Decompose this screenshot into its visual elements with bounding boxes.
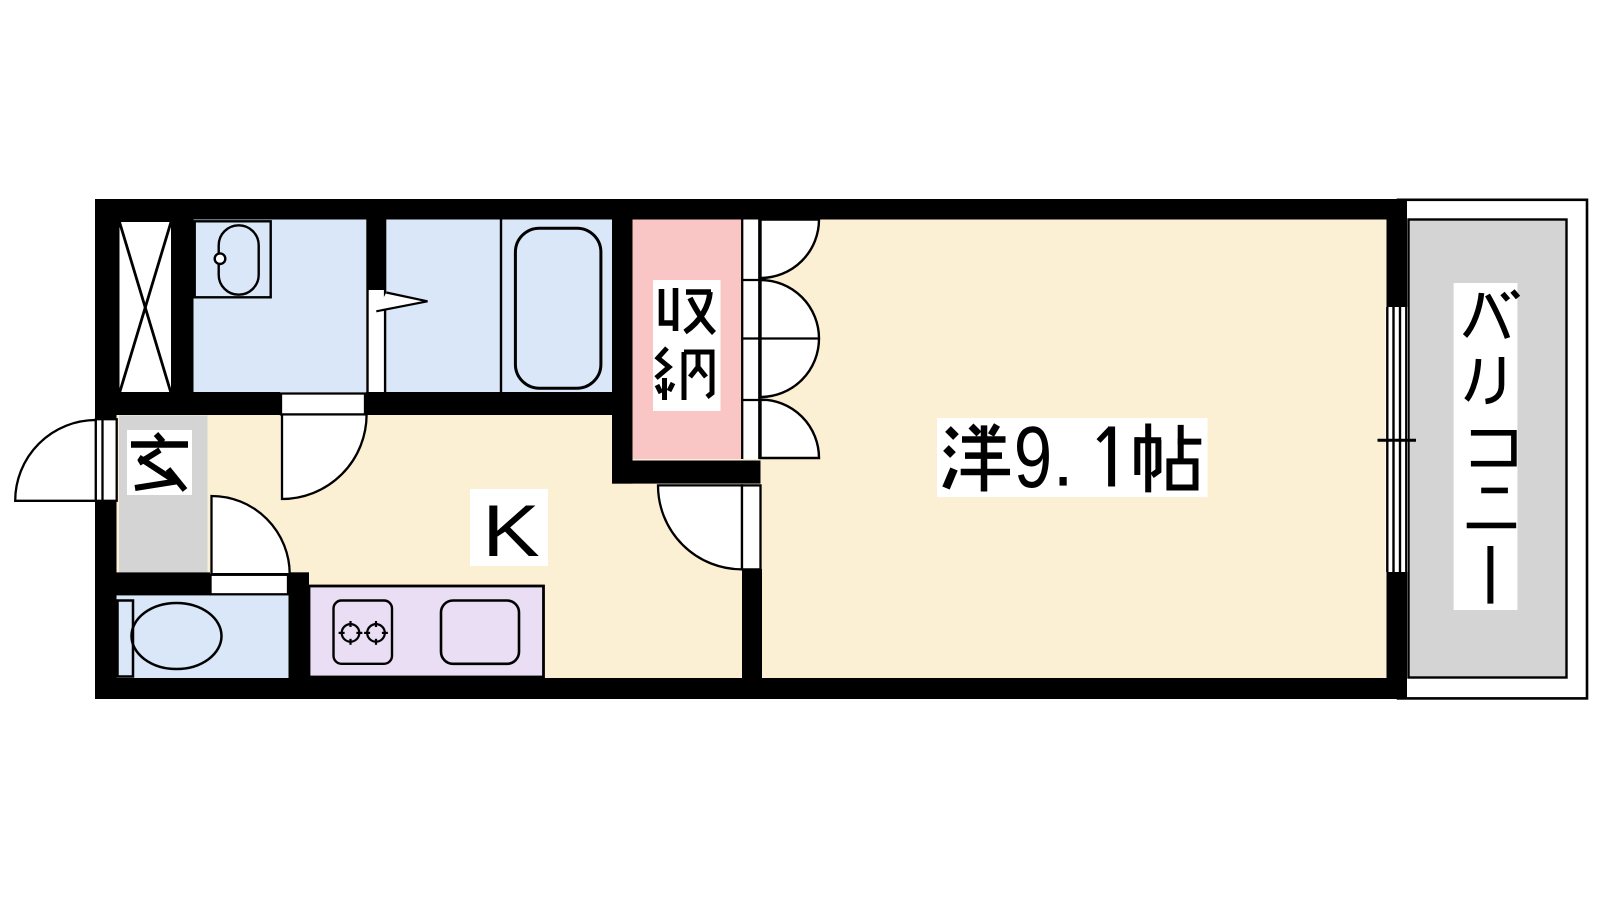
svg-text:9: 9 bbox=[1014, 408, 1052, 506]
svg-text:K: K bbox=[482, 490, 539, 571]
